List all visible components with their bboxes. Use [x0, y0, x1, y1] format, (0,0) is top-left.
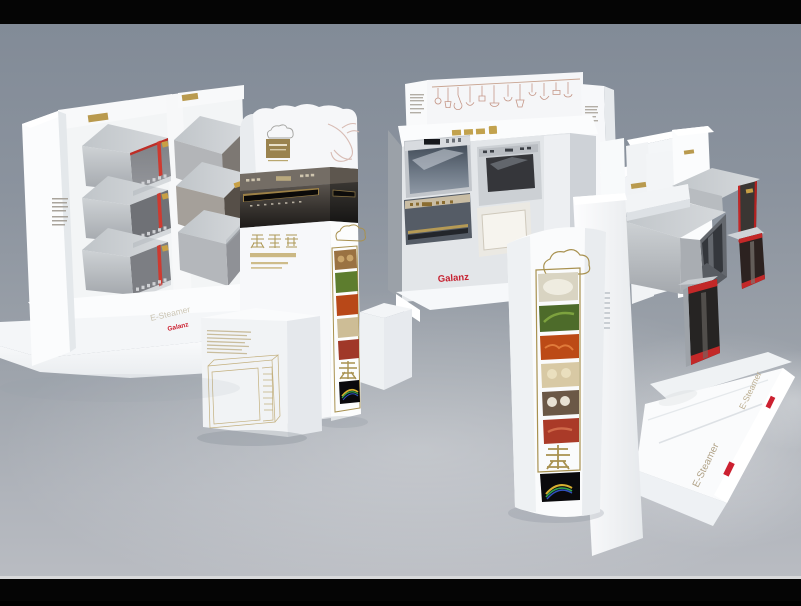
svg-text:Galanz: Galanz: [437, 272, 469, 285]
